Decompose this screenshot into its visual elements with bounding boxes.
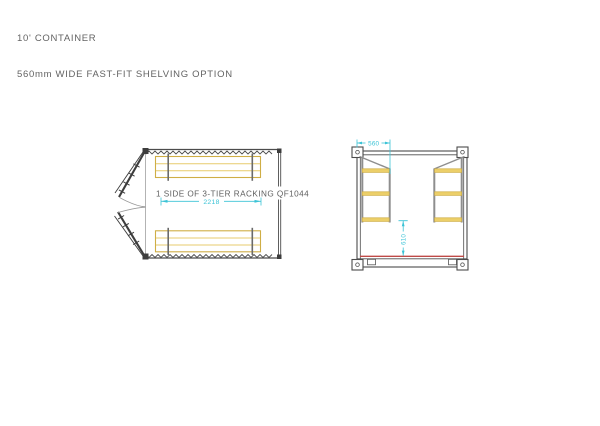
plan-door-top bbox=[115, 152, 146, 207]
plan-door-bottom bbox=[115, 207, 146, 256]
corner-casting bbox=[352, 260, 363, 271]
cad-drawing: 1 SIDE OF 3-TIER RACKING QF1044 2218 bbox=[0, 0, 600, 426]
corner-post bbox=[277, 149, 282, 154]
corner-casting bbox=[457, 260, 468, 271]
drawing-sheet: 10' CONTAINER 560mm WIDE FAST-FIT SHELVI… bbox=[0, 0, 600, 426]
shelf-tier bbox=[362, 218, 389, 222]
shelf-tier bbox=[362, 192, 389, 196]
shelf-tier bbox=[362, 169, 389, 173]
corner-post bbox=[277, 255, 282, 260]
door-swing-arc bbox=[118, 207, 146, 212]
shelf-tier bbox=[435, 218, 462, 222]
rack-brace bbox=[434, 157, 465, 170]
end-shelf-unit-right bbox=[434, 157, 465, 223]
corner-casting bbox=[457, 147, 468, 158]
floor-support-block bbox=[449, 259, 457, 265]
floor-support-block bbox=[368, 259, 376, 265]
plan-shelf-unit-top bbox=[156, 154, 261, 181]
shelf-tier bbox=[435, 169, 462, 173]
corner-castings bbox=[352, 147, 468, 270]
end-dim-clear-height: 610 bbox=[399, 221, 408, 256]
rack-brace bbox=[360, 157, 391, 170]
dim-length-text: 2218 bbox=[203, 199, 219, 206]
plan-shelf-unit-bottom bbox=[156, 228, 261, 255]
corner-casting bbox=[352, 147, 363, 158]
end-view: 560 610 bbox=[352, 140, 468, 271]
dim-clear-height-text: 610 bbox=[400, 234, 407, 245]
end-container-walls bbox=[357, 151, 467, 267]
end-shelf-unit-left bbox=[360, 157, 391, 223]
door-swing-arc bbox=[120, 198, 146, 207]
plan-view: 1 SIDE OF 3-TIER RACKING QF1044 2218 bbox=[115, 148, 317, 260]
shelf-tier bbox=[435, 192, 462, 196]
rack-label-text: 1 SIDE OF 3-TIER RACKING QF1044 bbox=[156, 190, 309, 199]
dim-shelf-width-text: 560 bbox=[368, 140, 379, 147]
plan-rack-label: 1 SIDE OF 3-TIER RACKING QF1044 bbox=[152, 187, 316, 200]
